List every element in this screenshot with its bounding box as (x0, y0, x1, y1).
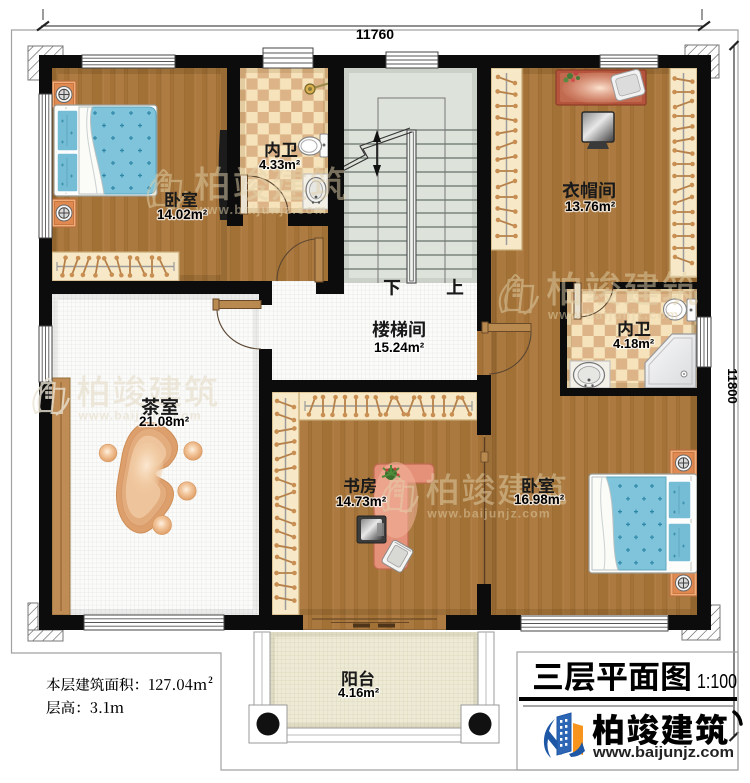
svg-text:www.baijunjz.com: www.baijunjz.com (195, 202, 327, 217)
svg-text:www.baijunjz.com: www.baijunjz.com (426, 507, 550, 521)
svg-text:15.24m²: 15.24m² (374, 340, 425, 355)
svg-text:4.18m²: 4.18m² (613, 336, 655, 351)
svg-text:www.baijunjz.com: www.baijunjz.com (592, 744, 734, 761)
svg-text:16.98m²: 16.98m² (514, 492, 565, 507)
svg-text:4.33m²: 4.33m² (259, 157, 301, 172)
svg-text:11760: 11760 (356, 26, 394, 42)
svg-text:www.baijunjz.com: www.baijunjz.com (547, 307, 679, 322)
svg-text:21.08m²: 21.08m² (139, 414, 190, 429)
svg-text:14.73m²: 14.73m² (336, 494, 387, 509)
svg-text:2: 2 (208, 675, 213, 685)
svg-text:11800: 11800 (725, 368, 740, 403)
svg-text:1:100: 1:100 (697, 671, 737, 693)
svg-text:14.02m²: 14.02m² (157, 207, 208, 222)
svg-text:13.76m²: 13.76m² (565, 199, 616, 214)
svg-text:4.16m²: 4.16m² (338, 685, 380, 700)
